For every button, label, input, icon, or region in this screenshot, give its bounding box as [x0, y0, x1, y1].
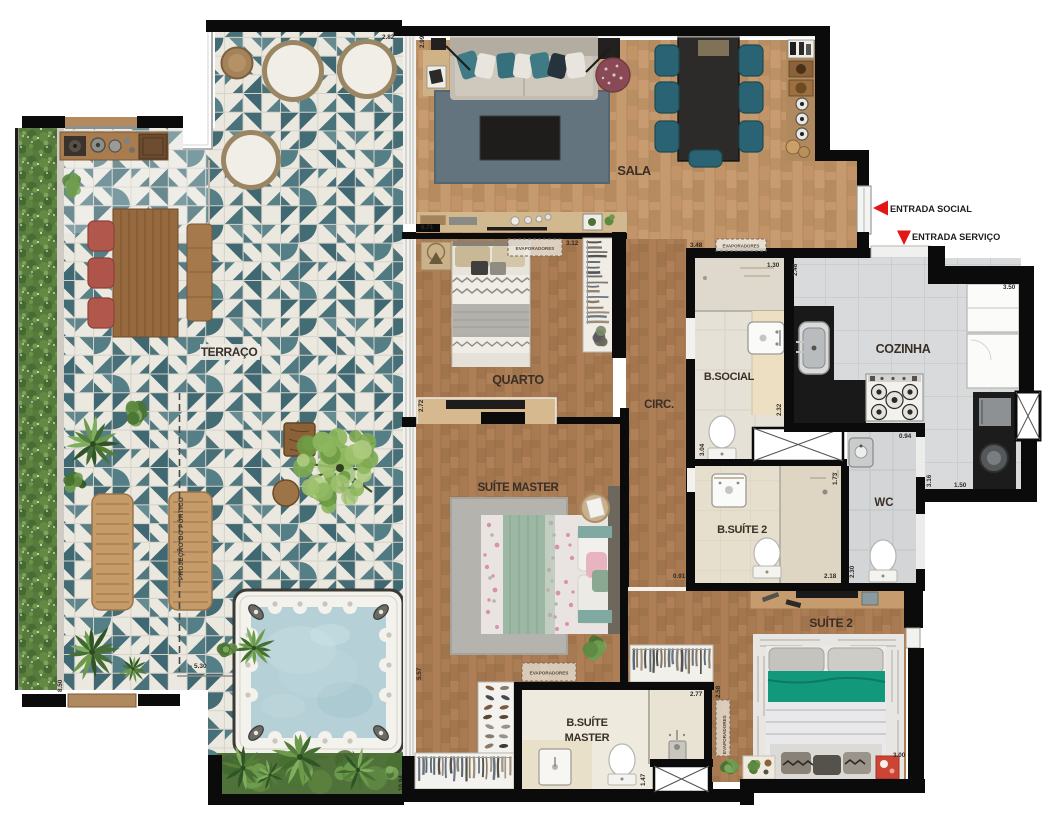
svg-text:3.48: 3.48: [690, 242, 703, 249]
svg-text:2.72: 2.72: [418, 399, 425, 412]
svg-text:QUARTO: QUARTO: [492, 373, 544, 387]
svg-text:SALA: SALA: [617, 163, 652, 178]
svg-text:B.SOCIAL: B.SOCIAL: [704, 371, 755, 383]
svg-text:B.SUÍTE 2: B.SUÍTE 2: [717, 523, 767, 536]
svg-text:MASTER: MASTER: [565, 732, 610, 744]
svg-text:SUÍTE 2: SUÍTE 2: [809, 615, 853, 630]
svg-text:EVAPORADORES: EVAPORADORES: [722, 244, 759, 249]
svg-text:2.30: 2.30: [849, 565, 856, 578]
svg-text:3.16: 3.16: [926, 474, 933, 487]
svg-text:0.94: 0.94: [899, 433, 912, 440]
svg-text:EVAPORADORES: EVAPORADORES: [530, 671, 569, 676]
svg-text:CIRC.: CIRC.: [644, 399, 674, 411]
svg-text:TERRAÇO: TERRAÇO: [201, 345, 258, 359]
svg-text:1.47: 1.47: [640, 773, 647, 786]
svg-text:1.50: 1.50: [954, 482, 967, 489]
svg-text:1.73: 1.73: [832, 472, 839, 485]
svg-text:3.00: 3.00: [893, 752, 906, 759]
svg-text:COZINHA: COZINHA: [876, 342, 931, 356]
svg-text:3.50: 3.50: [1003, 284, 1016, 291]
svg-text:SUÍTE MASTER: SUÍTE MASTER: [478, 481, 560, 494]
svg-text:2.32: 2.32: [776, 403, 783, 416]
svg-text:ENTRADA SERVIÇO: ENTRADA SERVIÇO: [912, 232, 1000, 242]
svg-text:WC: WC: [874, 497, 893, 509]
svg-text:2.82: 2.82: [382, 34, 395, 41]
svg-text:EVAPORADORES: EVAPORADORES: [722, 715, 727, 754]
svg-text:B.SUÍTE: B.SUÍTE: [566, 716, 607, 729]
svg-text:6.71: 6.71: [421, 224, 434, 231]
svg-text:2.58: 2.58: [715, 685, 722, 698]
svg-text:2.48: 2.48: [792, 263, 799, 276]
svg-text:3.12: 3.12: [566, 240, 579, 247]
svg-text:0.91: 0.91: [673, 573, 686, 580]
svg-text:2.18: 2.18: [824, 573, 837, 580]
svg-text:3.04: 3.04: [699, 443, 706, 456]
svg-text:1.30: 1.30: [767, 262, 780, 269]
svg-text:2.77: 2.77: [690, 691, 703, 698]
svg-text:2.99: 2.99: [419, 35, 426, 48]
svg-text:PROJEÇÃO DO PÓRTICO: PROJEÇÃO DO PÓRTICO: [177, 497, 185, 580]
svg-text:8.50: 8.50: [57, 679, 64, 692]
svg-text:EVAPORADORES: EVAPORADORES: [516, 246, 555, 251]
svg-text:ENTRADA SOCIAL: ENTRADA SOCIAL: [890, 204, 972, 214]
svg-text:- 5.30: - 5.30: [190, 663, 207, 670]
svg-text:5.57: 5.57: [416, 667, 423, 680]
